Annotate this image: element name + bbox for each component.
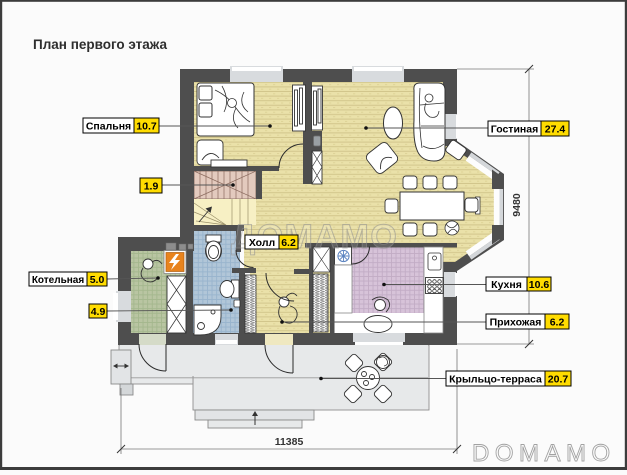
svg-text:DOMAMO: DOMAMO bbox=[472, 440, 616, 467]
svg-text:27.4: 27.4 bbox=[545, 124, 566, 136]
svg-text:10.7: 10.7 bbox=[136, 121, 157, 133]
svg-text:1.9: 1.9 bbox=[144, 181, 159, 193]
svg-text:Крыльцо-терраса: Крыльцо-терраса bbox=[449, 374, 542, 386]
svg-text:6.2: 6.2 bbox=[550, 317, 565, 329]
svg-text:Гостиная: Гостиная bbox=[491, 124, 538, 136]
svg-text:6.2: 6.2 bbox=[281, 237, 296, 249]
svg-text:Спальня: Спальня bbox=[86, 121, 131, 133]
svg-text:Холл: Холл bbox=[249, 237, 275, 249]
svg-text:План первого этажа: План первого этажа bbox=[33, 37, 168, 52]
svg-text:10.6: 10.6 bbox=[529, 279, 550, 291]
svg-text:4.9: 4.9 bbox=[91, 306, 106, 318]
svg-text:11385: 11385 bbox=[275, 436, 304, 448]
svg-text:5.0: 5.0 bbox=[90, 274, 105, 286]
svg-text:Прихожая: Прихожая bbox=[490, 317, 542, 329]
svg-text:Котельная: Котельная bbox=[32, 275, 85, 286]
svg-text:Кухня: Кухня bbox=[491, 279, 522, 291]
svg-text:20.7: 20.7 bbox=[548, 374, 569, 386]
svg-text:9480: 9480 bbox=[511, 193, 523, 217]
